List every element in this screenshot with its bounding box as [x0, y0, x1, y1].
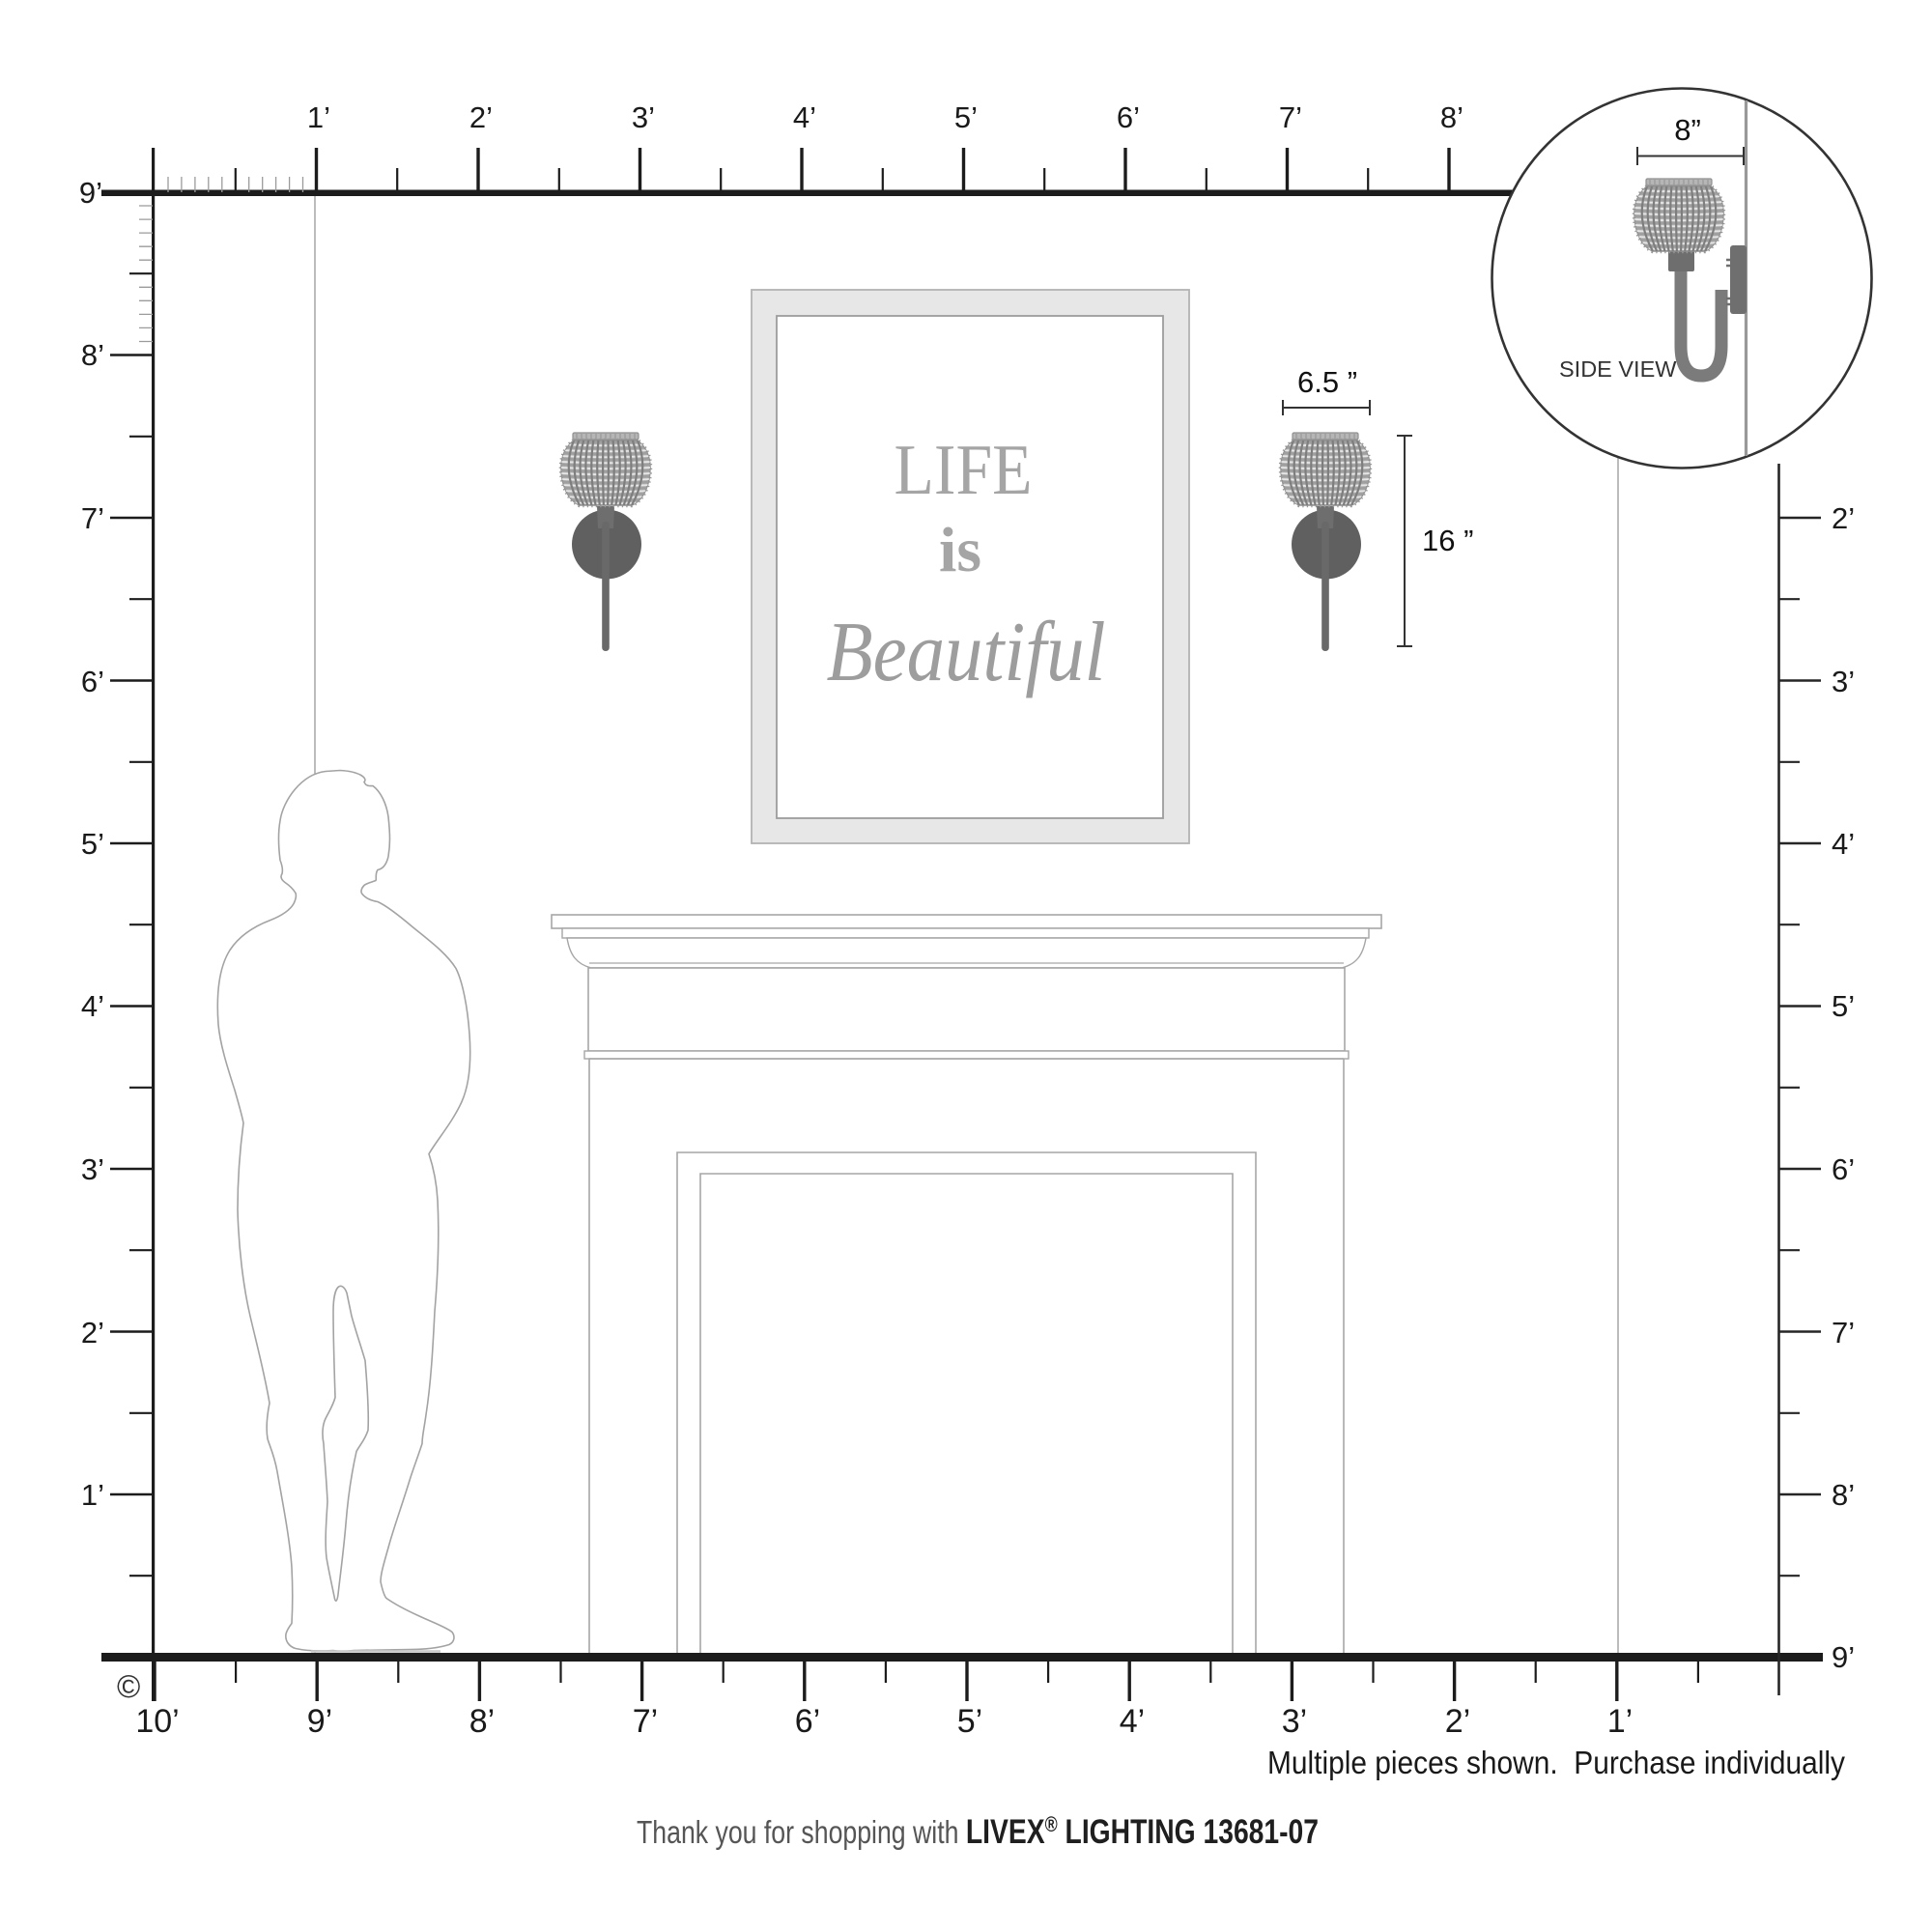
svg-text:3’: 3’: [632, 100, 655, 134]
svg-text:7’: 7’: [81, 501, 104, 535]
svg-text:1’: 1’: [1607, 1703, 1633, 1740]
svg-text:9’: 9’: [307, 1703, 332, 1740]
svg-text:8’: 8’: [1832, 1478, 1855, 1512]
svg-text:5’: 5’: [81, 827, 104, 861]
svg-text:3’: 3’: [1832, 665, 1855, 698]
svg-text:Multiple pieces shown. Purcha: Multiple pieces shown. Purchase individu…: [1267, 1746, 1845, 1781]
svg-text:2’: 2’: [81, 1316, 104, 1350]
svg-text:16 ”: 16 ”: [1422, 524, 1473, 557]
svg-text:7’: 7’: [633, 1703, 658, 1740]
svg-text:is: is: [939, 515, 981, 585]
svg-text:5’: 5’: [1832, 989, 1855, 1023]
svg-text:Beautiful: Beautiful: [827, 606, 1106, 699]
svg-text:7’: 7’: [1832, 1316, 1855, 1350]
svg-text:9’: 9’: [1832, 1640, 1855, 1674]
svg-text:2’: 2’: [469, 100, 493, 134]
svg-text:8’: 8’: [81, 338, 104, 372]
svg-text:5’: 5’: [954, 100, 978, 134]
svg-text:Thank you for shopping with LI: Thank you for shopping with LIVEX® LIGHT…: [637, 1812, 1319, 1851]
svg-text:10’: 10’: [135, 1703, 179, 1740]
svg-text:7’: 7’: [1279, 100, 1302, 134]
svg-text:8’: 8’: [469, 1703, 495, 1740]
svg-text:6’: 6’: [1117, 100, 1140, 134]
svg-text:6.5 ”: 6.5 ”: [1297, 365, 1357, 399]
svg-text:2’: 2’: [1832, 501, 1855, 535]
svg-text:3’: 3’: [81, 1152, 104, 1186]
svg-text:5’: 5’: [957, 1703, 982, 1740]
svg-text:4’: 4’: [81, 989, 104, 1023]
svg-text:8”: 8”: [1674, 113, 1701, 147]
svg-text:1’: 1’: [307, 100, 330, 134]
svg-text:6’: 6’: [81, 665, 104, 698]
svg-text:6’: 6’: [1832, 1152, 1855, 1186]
svg-text:9’: 9’: [79, 176, 102, 210]
svg-text:6’: 6’: [795, 1703, 820, 1740]
svg-text:4’: 4’: [793, 100, 816, 134]
svg-text:8’: 8’: [1440, 100, 1463, 134]
svg-text:2’: 2’: [1445, 1703, 1470, 1740]
svg-text:3’: 3’: [1282, 1703, 1307, 1740]
svg-text:SIDE VIEW: SIDE VIEW: [1559, 356, 1677, 382]
svg-text:LIFE: LIFE: [895, 431, 1033, 510]
svg-text:4’: 4’: [1120, 1703, 1145, 1740]
svg-text:4’: 4’: [1832, 827, 1855, 861]
svg-text:1’: 1’: [81, 1478, 104, 1512]
svg-text:©: ©: [117, 1668, 140, 1704]
